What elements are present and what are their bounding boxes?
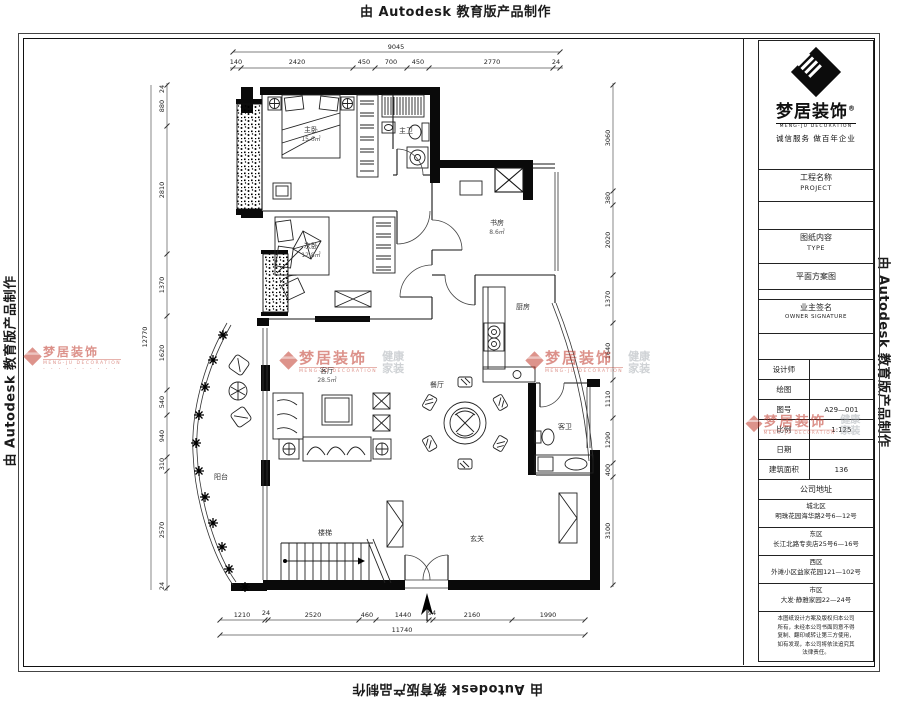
dim-label: 1620 [158,345,166,362]
dim-label: 24 [262,609,270,617]
field-row: 建筑面积136 [759,459,873,479]
walls [231,87,600,591]
toilet-bowl [542,429,554,445]
type-label-cell: 图纸内容 TYPE [759,229,873,263]
dimension-chain-bottom: 1210 24 2520 460 1440 94 2160 1990 11740 [218,609,588,638]
company-logo-icon [789,45,843,99]
dim-label: 1640 [604,343,612,360]
field-row: 图号A29—001 [759,399,873,419]
address-entry: 市区 大发·静雅家园22—24号 [759,583,873,611]
field-label: 比例 [759,420,810,439]
dim-label: 140 [230,58,242,66]
address-district: 城北区 [759,502,873,512]
vanity-counter [535,455,593,473]
registered-mark: ® [848,104,856,112]
dim-label: 1990 [540,611,557,619]
room-label: 次卧 [304,241,318,250]
owner-value-cell [759,333,873,359]
room-label: 客厅 [320,366,334,375]
room-label: 书房 [490,218,504,227]
dim-label: 2520 [305,611,322,619]
dim-label: 880 [158,100,166,112]
dim-label: 11740 [392,626,413,634]
note-line: 如有发现，本公司将依法追究其 [763,641,869,650]
titleblock-separator-line [743,38,744,665]
brand-name-en: MENG-JU DECORATION [759,124,873,129]
dim-label: 940 [158,430,166,442]
dim-label: 400 [604,464,612,476]
field-value [810,440,873,459]
brand-tagline: 诚信服务 做百年企业 [759,133,873,144]
field-value [810,380,873,399]
address-district: 东区 [759,530,873,540]
master-door [397,211,430,244]
dim-label: 2770 [484,58,501,66]
dim-label: 460 [361,611,373,619]
spacer-row [759,289,873,299]
address-detail: 明珠花园海华路2号6—12号 [759,512,873,522]
room-label: 楼梯 [318,528,332,537]
dim-label: 450 [412,58,424,66]
address-district: 市区 [759,586,873,596]
title-block: 梦居装饰® MENG-JU DECORATION 诚信服务 做百年企业 工程名称… [758,40,874,662]
room-label: 客卫 [558,422,572,431]
brand-name: 梦居装饰® [776,103,856,124]
master-bathroom [382,95,429,175]
project-value-cell [759,201,873,229]
project-label-cell: 工程名称 PROJECT [759,169,873,201]
staircase [281,539,391,583]
dim-label: 9045 [388,43,405,51]
field-label: 日期 [759,440,810,459]
room-area: 8.6㎡ [489,228,505,236]
dimension-chain-right: 3060 380 2020 1370 1640 1110 1290 400 31… [604,83,616,588]
dim-label: 24 [552,58,560,66]
dim-label: 1370 [158,277,166,294]
sink [513,371,521,379]
kitchen [445,275,535,382]
field-label: 建筑面积 [759,460,810,479]
balcony-furniture [228,354,252,428]
copyright-notes: 本图纸设计方案及版权归本公司 所有，未经本公司书面同意不得 复制、翻印或转让第三… [759,611,873,661]
field-label: 设计师 [759,360,810,379]
type-label: 图纸内容 [759,233,873,244]
field-label: 绘图 [759,380,810,399]
project-label: 工程名称 [759,173,873,184]
dim-label: 700 [385,58,397,66]
dim-label: 1210 [234,611,251,619]
dim-label: 450 [358,58,370,66]
field-label: 图号 [759,400,810,419]
field-value: 1:125 [810,420,873,439]
room-label: 主卫 [399,126,413,135]
autodesk-watermark-bottom: 由 Autodesk 教育版产品制作 [352,681,543,700]
field-value: 136 [810,460,873,479]
dim-label: 1290 [604,432,612,449]
second-door [400,265,432,297]
address-district: 西区 [759,558,873,568]
address-detail: 外滩小区益家花园121—102号 [759,568,873,578]
room-area: 12.8㎡ [301,251,320,259]
owner-label-cell: 业主签名 OWNER SIGNATURE [759,299,873,333]
dim-label: 1440 [395,611,412,619]
dim-label: 1370 [604,291,612,308]
project-label-en: PROJECT [759,184,873,193]
dim-label: 3060 [604,130,612,147]
dim-label: 2020 [604,232,612,249]
address-entry: 西区 外滩小区益家花园121—102号 [759,555,873,583]
room-label: 厨房 [516,302,530,311]
owner-label-en: OWNER SIGNATURE [759,314,873,321]
master-dresser [273,183,291,199]
room-area: 15.6㎡ [301,135,320,143]
dim-label: 540 [158,396,166,408]
room-label: 阳台 [214,472,228,481]
dim-label: 2160 [464,611,481,619]
nightstand-lamps [268,97,354,110]
company-logo-block: 梦居装饰® MENG-JU DECORATION 诚信服务 做百年企业 [759,41,873,169]
second-wardrobe [373,217,395,273]
address-header-cell: 公司地址 [759,479,873,499]
note-line: 所有，未经本公司书面同意不得 [763,624,869,633]
balcony-plants [191,330,250,592]
dimension-chain-top: 9045 140 2420 450 700 450 2770 24 [230,43,563,71]
field-value [810,360,873,379]
room-label: 玄关 [470,534,484,543]
basin [565,458,587,470]
note-line: 复制、翻印或转让第三方使用， [763,632,869,641]
autodesk-watermark-left: 由 Autodesk 教育版产品制作 [0,257,19,467]
dimension-chain-left: 12770 24 880 2810 1370 1620 540 940 310 … [141,83,170,592]
address-detail: 大发·静雅家园22—24号 [759,596,873,606]
owner-label: 业主签名 [759,303,873,314]
field-row: 绘图 [759,379,873,399]
dim-label: 12770 [141,327,149,348]
windows [193,172,593,585]
master-wardrobe [357,95,378,177]
dim-label: 380 [604,192,612,204]
dim-label: 24 [158,85,166,93]
floor-plan-drawing: 9045 140 2420 450 700 450 2770 24 1210 2… [135,35,665,665]
dim-label: 2810 [158,182,166,199]
dim-label: 310 [158,458,166,470]
note-line: 本图纸设计方案及版权归本公司 [763,615,869,624]
entry-double-door [405,555,448,588]
autodesk-watermark-top: 由 Autodesk 教育版产品制作 [360,1,551,20]
note-line: 法律责任。 [763,649,869,658]
kitchen-door-arc [445,275,475,305]
elevator-shaft [495,168,523,192]
room-label: 主卧 [304,125,318,134]
coffee-table [322,395,352,425]
type-value-cell: 平面方案图 [759,263,873,289]
toilet-tank [422,123,429,141]
field-row: 比例1:125 [759,419,873,439]
field-row: 日期 [759,439,873,459]
room-label: 餐厅 [430,380,444,389]
address-entry: 东区 长江北路专卖店25号6—16号 [759,527,873,555]
address-detail: 长江北路专卖店25号6—16号 [759,540,873,550]
dining-table [444,402,486,444]
living-room-set [273,393,391,461]
dim-label: 24 [158,582,166,590]
dim-label: 3100 [604,523,612,540]
field-row: 设计师 [759,359,873,379]
second-bed [275,217,329,275]
dim-label: 1110 [604,391,612,408]
interior-walls [262,95,590,475]
address-entry: 城北区 明珠花园海华路2号6—12号 [759,499,873,527]
study [432,181,482,250]
bath-door-arc [397,149,423,175]
dim-label: 2420 [289,58,306,66]
room-area: 28.5㎡ [317,376,336,384]
type-label-en: TYPE [759,244,873,253]
second-bench [335,291,371,307]
field-value: A29—001 [810,400,873,419]
dim-label: 2570 [158,522,166,539]
